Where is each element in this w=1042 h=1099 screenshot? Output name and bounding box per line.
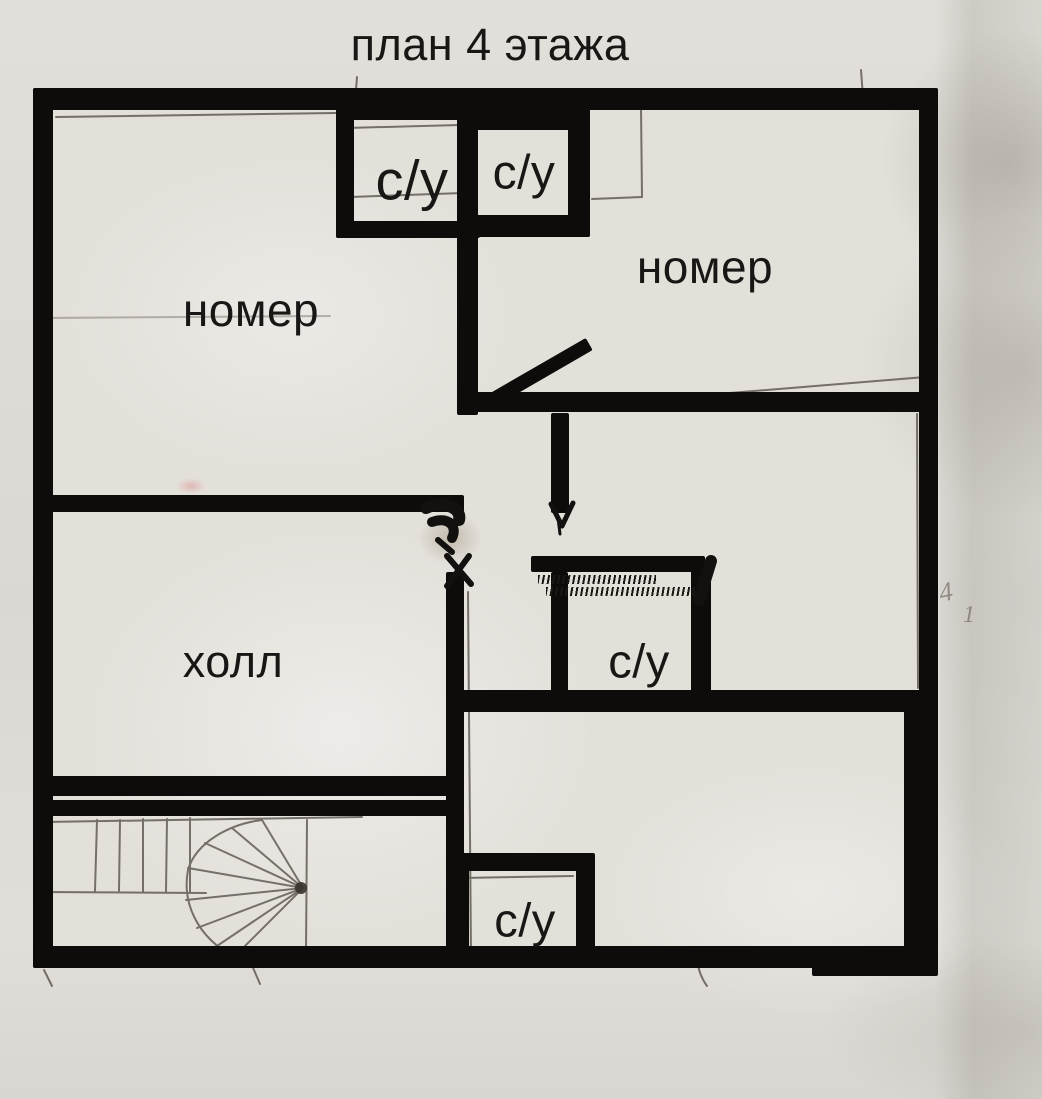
label-bath-top-right: с/у [493,146,556,201]
bath-mid-door-flap [699,561,711,600]
scribble-blob [432,520,454,538]
label-bath-middle: с/у [608,634,670,689]
label-bath-bottom: с/у [494,893,556,948]
label-hall: холл [183,636,284,688]
scribble-arrowhead [558,518,560,534]
label-bath-top-left: с/у [375,148,448,213]
scribble-arrowhead [562,503,573,526]
label-room-top-right: номер [637,240,773,294]
scribble-arrowhead [551,504,562,526]
label-room-top-left: номер [183,283,319,337]
page-title: план 4 этажа [351,19,630,71]
floor-plan-photo: 4 1 [0,0,1042,1099]
